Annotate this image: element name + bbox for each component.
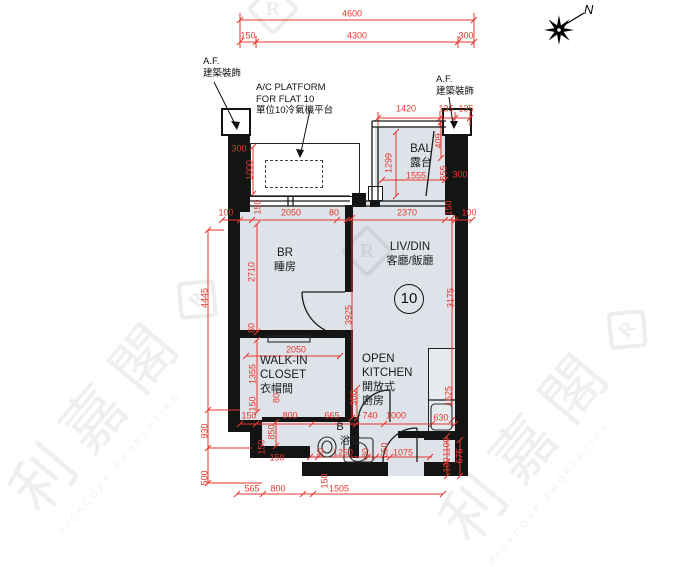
dim-label: 630: [433, 414, 448, 423]
dim-label: 675: [456, 448, 465, 463]
dim-label: 150: [240, 32, 255, 41]
dim-label: 1000: [386, 412, 406, 421]
dim-label: 1075: [393, 449, 413, 458]
dim-label: 4300: [347, 32, 367, 41]
dim-label: 300: [452, 171, 467, 180]
room-label-br: BR 睡房: [253, 246, 317, 274]
dim-label: 80: [273, 393, 282, 403]
unit-number-badge: 10: [394, 284, 424, 314]
dim-label: 300: [458, 32, 473, 41]
af-annotation-right: A.F. 建築裝飾: [436, 74, 474, 97]
dim-label: 1355: [249, 364, 258, 384]
af-annotation-left: A.F. 建築裝飾: [203, 56, 241, 79]
dim-label: 2050: [281, 209, 301, 218]
ac-platform-annotation: A/C PLATFORM FOR FLAT 10 單位10冷氣機平台: [256, 82, 333, 117]
dim-label: 1299: [385, 153, 394, 173]
dim-label: 100: [218, 209, 233, 218]
dim-label: 565: [244, 485, 259, 494]
dim-label: 80: [329, 209, 339, 218]
dim-label: 300: [231, 145, 246, 154]
dim-label: 3925: [345, 305, 354, 325]
dim-label: 655: [440, 165, 449, 180]
room-label-closet: WALK-IN CLOSET 衣帽間: [260, 354, 308, 396]
dim-label: 1420: [396, 105, 416, 114]
dim-label: 850: [268, 424, 277, 439]
dim-label: 80: [248, 323, 257, 333]
dim-label: 2050: [286, 346, 306, 355]
dim-label: 665: [324, 412, 339, 421]
dim-label: 150: [254, 199, 263, 214]
floor-plan-canvas: 利嘉閣R RICACORP PROPERTIES 利嘉閣R RICACORP P…: [0, 0, 680, 510]
dim-label: 150: [258, 439, 267, 454]
north-label: N: [584, 2, 593, 17]
dim-label: 500: [201, 470, 210, 485]
dim-label: 100: [443, 457, 452, 472]
compass-icon: [544, 13, 584, 45]
dim-label: 930: [201, 423, 210, 438]
dim-label: 409: [435, 133, 444, 148]
dim-label: 800: [270, 485, 285, 494]
dim-label: 650: [381, 442, 390, 457]
dim-label: 4600: [342, 10, 362, 19]
dim-label: 1505: [329, 485, 349, 494]
dim-label: 150: [269, 454, 284, 463]
dim-label: 100: [461, 209, 476, 218]
dim-label: 135: [438, 105, 453, 114]
dim-label: 2710: [248, 262, 257, 282]
dim-label: 80: [317, 448, 326, 458]
dim-label: 3175: [447, 288, 456, 308]
dim-label: 800: [282, 412, 297, 421]
dim-label: 1555: [406, 172, 426, 181]
dim-label: 300: [350, 390, 359, 405]
dim-label: 150: [241, 412, 256, 421]
dim-label: 2370: [397, 209, 417, 218]
dim-label: 80: [362, 448, 371, 458]
room-label-livdin: LIV/DIN 客廳/飯廳: [368, 240, 452, 268]
room-label-kitchen: OPEN KITCHEN 開放式 廚房: [362, 352, 412, 408]
room-label-bath-b: B: [332, 420, 348, 434]
dim-label: 740: [362, 412, 377, 421]
dim-label: 135: [458, 105, 473, 114]
dim-label: 150: [249, 396, 258, 411]
dim-label: 150: [445, 200, 454, 215]
dim-label: 1250: [333, 449, 353, 458]
dim-label: 1100: [443, 437, 452, 456]
dim-label: 1000: [246, 160, 255, 180]
dim-label: 1625: [445, 386, 454, 406]
dim-label: 4445: [201, 288, 210, 308]
